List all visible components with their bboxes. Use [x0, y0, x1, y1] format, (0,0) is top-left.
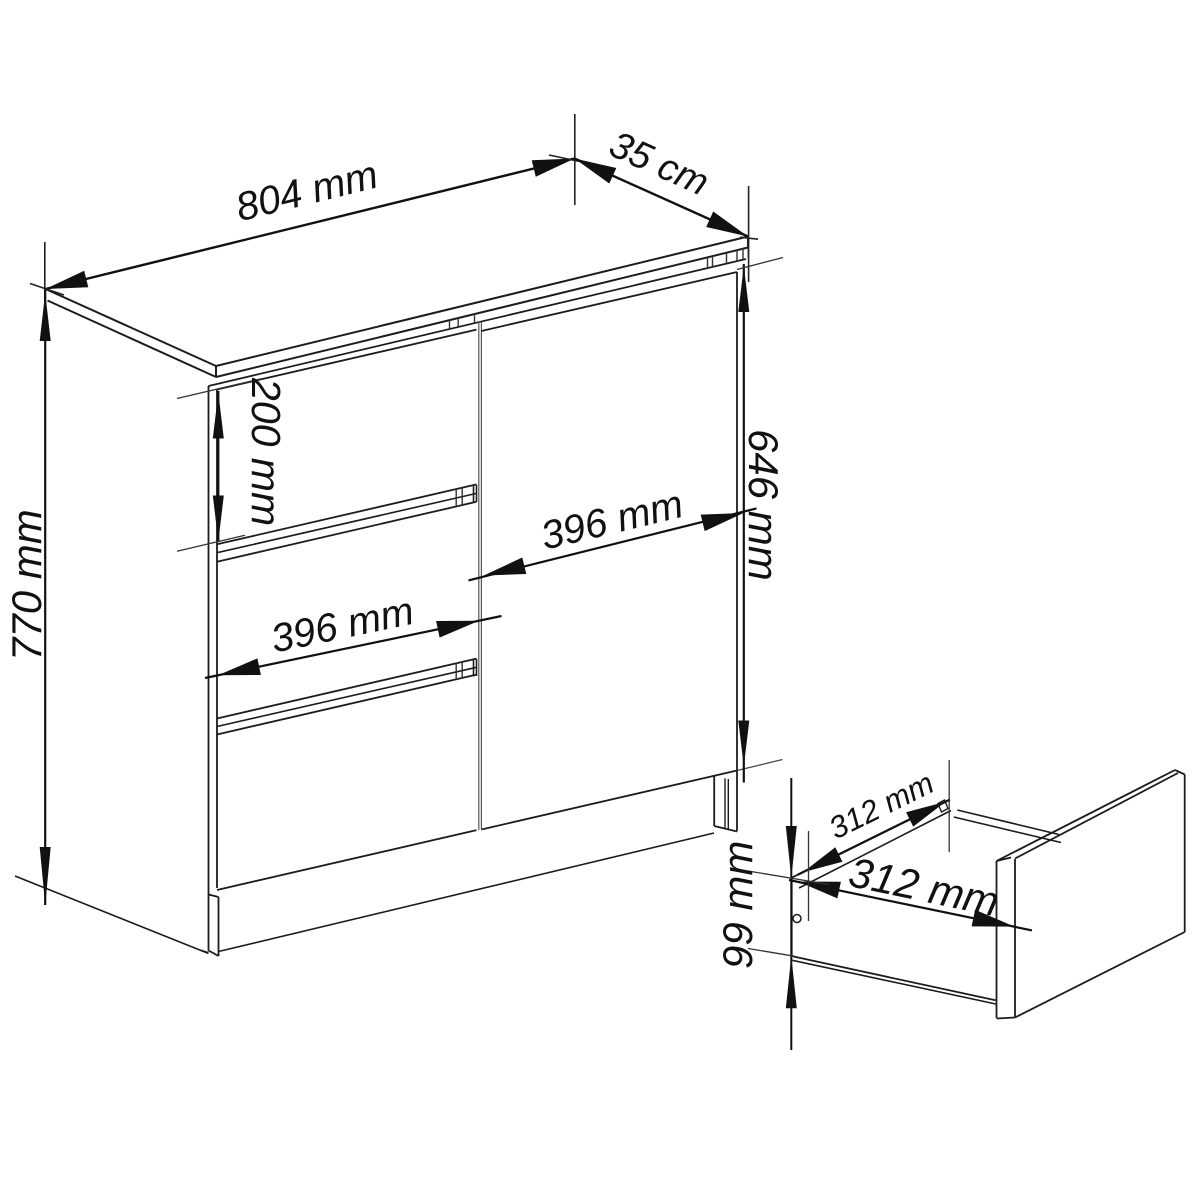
svg-text:770 mm: 770 mm: [3, 509, 50, 661]
svg-text:200 mm: 200 mm: [243, 377, 289, 526]
svg-text:646 mm: 646 mm: [740, 429, 787, 581]
svg-text:99 mm: 99 mm: [714, 841, 761, 969]
